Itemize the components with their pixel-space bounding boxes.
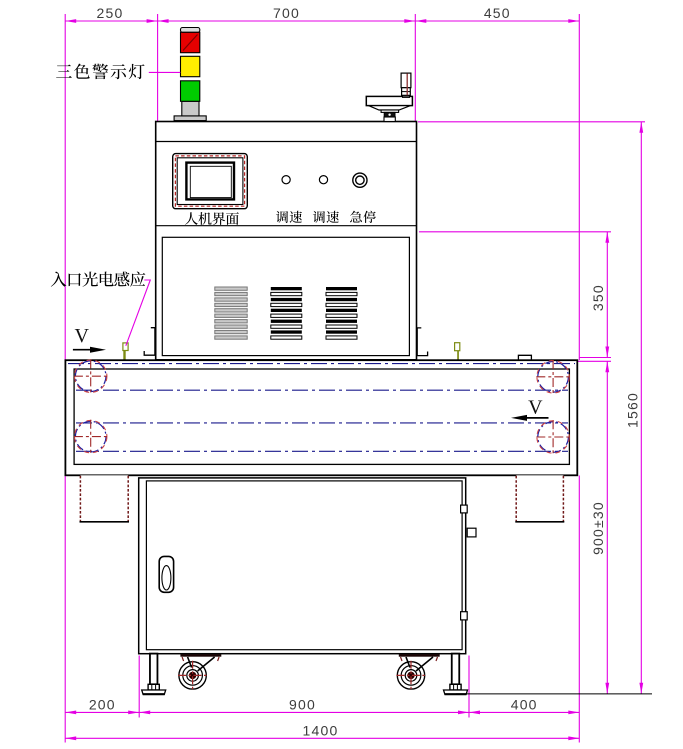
svg-text:250: 250: [97, 5, 124, 21]
svg-text:450: 450: [484, 5, 511, 21]
svg-text:1400: 1400: [303, 722, 339, 738]
svg-text:1560: 1560: [625, 392, 641, 428]
svg-text:350: 350: [590, 284, 606, 311]
svg-text:700: 700: [273, 5, 300, 21]
svg-text:200: 200: [89, 697, 116, 713]
svg-text:400: 400: [511, 697, 538, 713]
svg-text:900: 900: [289, 697, 316, 713]
svg-text:900±30: 900±30: [590, 501, 606, 555]
svg-text:V: V: [74, 325, 89, 347]
svg-text:V: V: [528, 397, 543, 419]
